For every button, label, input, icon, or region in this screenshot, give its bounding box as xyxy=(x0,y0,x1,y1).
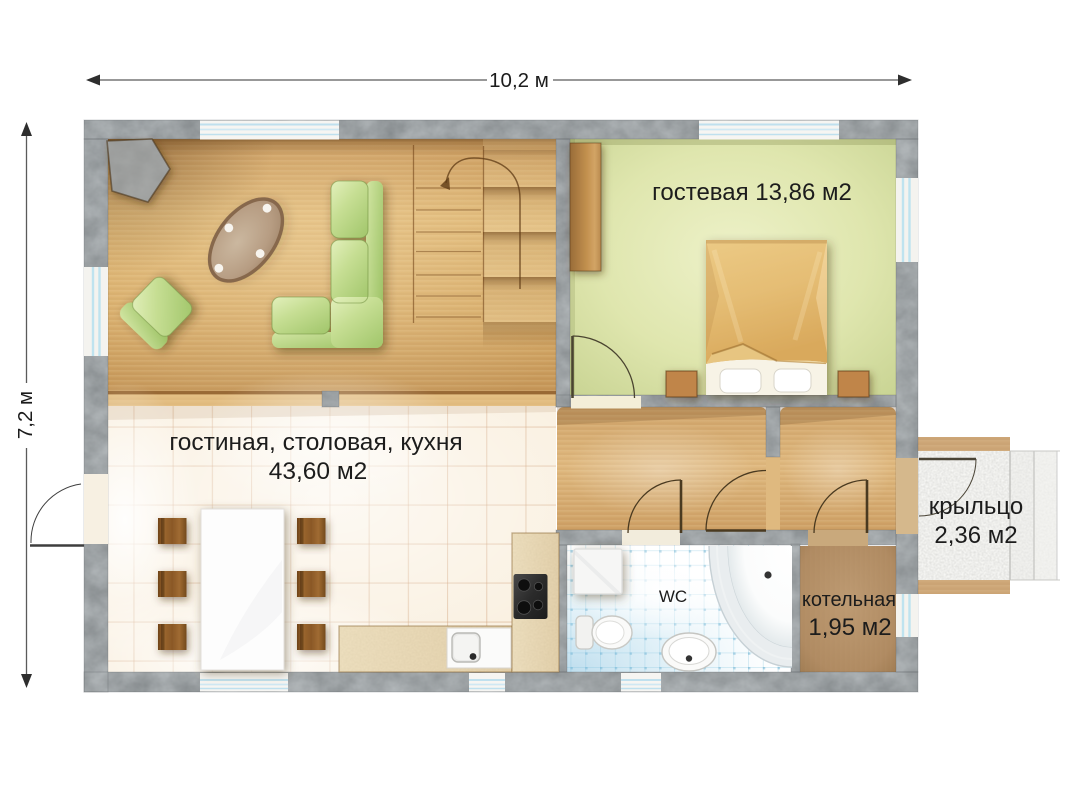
svg-text:гостиная, столовая, кухня: гостиная, столовая, кухня xyxy=(169,429,462,456)
svg-text:2,36 м2: 2,36 м2 xyxy=(934,522,1017,549)
svg-text:1,95 м2: 1,95 м2 xyxy=(808,614,891,641)
svg-text:43,60 м2: 43,60 м2 xyxy=(269,458,368,485)
svg-text:гостевая 13,86 м2: гостевая 13,86 м2 xyxy=(652,179,852,206)
svg-text:10,2 м: 10,2 м xyxy=(489,69,549,92)
svg-text:котельная: котельная xyxy=(802,589,896,611)
svg-text:крыльцо: крыльцо xyxy=(929,493,1023,520)
svg-text:7,2 м: 7,2 м xyxy=(14,391,37,439)
svg-text:WC: WC xyxy=(659,587,687,606)
